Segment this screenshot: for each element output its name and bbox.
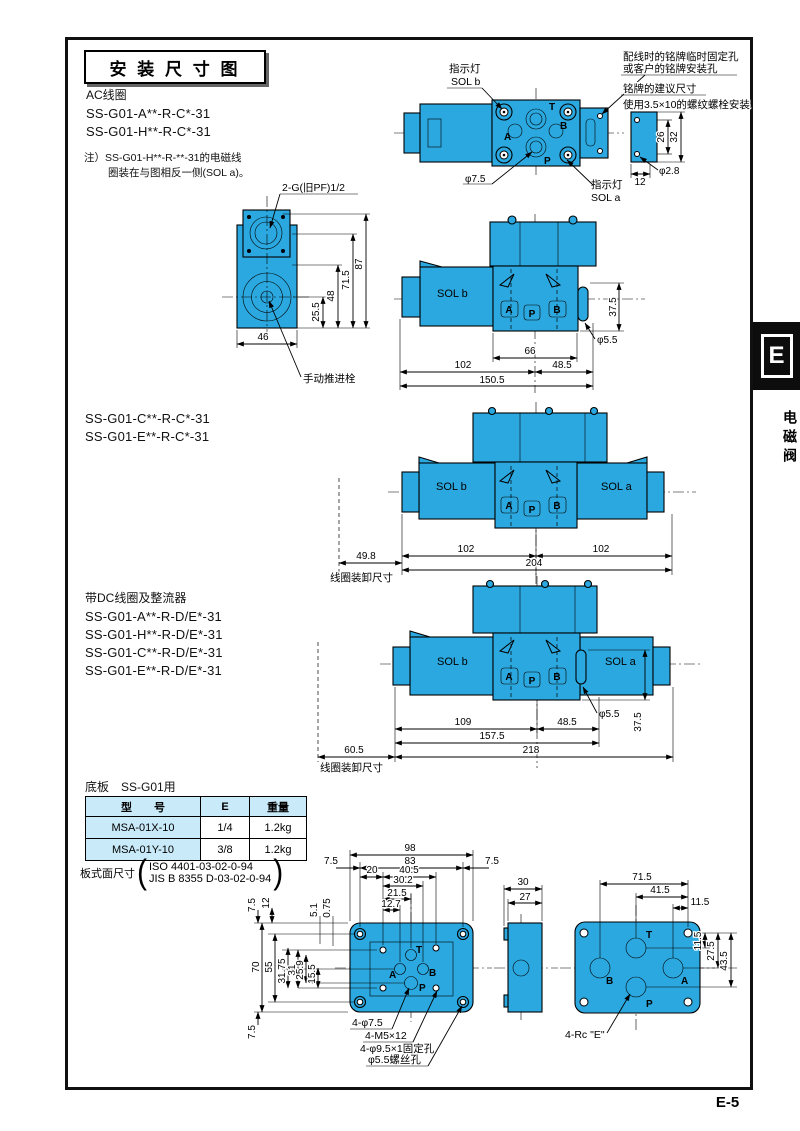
dim-157-5: 157.5 xyxy=(479,731,504,742)
dim-71-5: 71.5 xyxy=(341,270,352,290)
dim-60-5: 60.5 xyxy=(344,745,364,756)
tab-side-label: 电磁阀 xyxy=(753,398,800,478)
sym-b: B xyxy=(553,305,560,316)
dim-25-9: 25.9 xyxy=(295,960,306,980)
dim-102: 102 xyxy=(455,360,472,371)
sol-b-label: SOL b xyxy=(436,481,467,493)
ac-heading: AC线圈 xyxy=(86,86,211,103)
dim-7-5-right: 7.5 xyxy=(485,856,499,867)
dia-5-5: φ5.5 xyxy=(599,709,620,720)
c-model-2: SS-G01-E**-R-C*-31 xyxy=(85,429,210,444)
sol-b-label: SOL b xyxy=(437,288,468,300)
fix-note-1: 配线时的铭牌临时固定孔 xyxy=(623,50,739,63)
dim-15-5: 15.5 xyxy=(307,964,318,984)
dia-5-5: φ5.5 xyxy=(597,335,618,346)
sym-p: P xyxy=(529,309,536,320)
dim-32: 32 xyxy=(669,131,680,143)
subplate-table: 型 号 E 重量 MSA-01X-10 1/4 1.2kg MSA-01Y-10… xyxy=(85,796,307,861)
c-series-section: SS-G01-C**-R-C*-31 SS-G01-E**-R-C*-31 xyxy=(85,411,210,444)
port-b-label: B xyxy=(560,121,567,132)
valve2-drawing: A P B SOL b SOL a 102 102 204 49.8 线圈装卸尺… xyxy=(330,402,696,584)
leftview-drawing: 25.5 48 71.5 87 46 2-G(旧PF)1/2 手动推进栓 xyxy=(222,182,370,385)
port-t-label: T xyxy=(549,102,555,113)
port-a-label: A xyxy=(389,970,396,981)
dim-11-5-h: 11.5 xyxy=(691,897,710,908)
plate-size-note: 铭牌的建议尺寸 xyxy=(623,82,697,95)
sol-a-label: SOL a xyxy=(601,481,633,493)
dim-204: 204 xyxy=(526,558,543,569)
dim-37-5: 37.5 xyxy=(608,297,619,317)
sym-a: A xyxy=(505,501,512,512)
sym-p: P xyxy=(529,505,536,516)
dim-66: 66 xyxy=(524,346,536,357)
ac-section: AC线圈 SS-G01-A**-R-C*-31 SS-G01-H**-R-C*-… xyxy=(86,86,211,139)
dim-70: 70 xyxy=(251,961,262,973)
dim-55: 55 xyxy=(264,961,275,973)
valve3-drawing: A P B SOL b SOL a φ5.5 37.5 109 48.5 157… xyxy=(318,576,700,774)
port-p-label: P xyxy=(646,999,653,1010)
ac-note-line2: 圈装在与图相反一侧(SOL a)。 xyxy=(108,165,249,180)
valve1-drawing: A P B SOL b 37.5 φ5.5 66 102 48.5 150.5 xyxy=(394,214,645,393)
sym-b: B xyxy=(553,501,560,512)
dc-model-1: SS-G01-A**-R-D/E*-31 xyxy=(85,609,223,624)
cell-weight: 1.2kg xyxy=(250,817,307,839)
sol-a-label: SOL a xyxy=(605,656,637,668)
dc-heading: 带DC线圈及整流器 xyxy=(85,589,223,606)
ac-model-2: SS-G01-H**-R-C*-31 xyxy=(86,124,211,139)
subplate-heading-text: 底板 SS-G01用 xyxy=(85,778,176,795)
iso-standard: ISO 4401-03-02-0-94 xyxy=(149,861,271,873)
dim-7-5-bottom: 7.5 xyxy=(247,1025,258,1039)
port-t-label: T xyxy=(416,945,422,956)
sym-b: B xyxy=(553,672,560,683)
sym-a: A xyxy=(505,672,512,683)
dim-21-5: 21.5 xyxy=(387,888,407,899)
dim-26: 26 xyxy=(656,131,667,143)
paren-close: ) xyxy=(273,853,283,892)
coil-removal-label: 线圈装卸尺寸 xyxy=(320,761,383,774)
dim-87: 87 xyxy=(354,258,365,270)
jis-standard: JIS B 8355 D-03-02-0-94 xyxy=(149,873,271,885)
dia75-label: φ7.5 xyxy=(465,174,486,185)
tab-letter: E xyxy=(761,334,793,378)
holes-4-m5: 4-M5×12 xyxy=(365,1030,407,1042)
dim-48-5: 48.5 xyxy=(557,717,577,728)
subplate-heading: 底板 SS-G01用 xyxy=(85,778,176,795)
dim-49-8: 49.8 xyxy=(356,551,376,562)
fix-note-2: 或客户的铭牌安装孔 xyxy=(623,62,718,75)
dim-27-5: 27.5 xyxy=(706,941,717,961)
dim-27: 27 xyxy=(519,892,531,903)
surface-label: 板式面尺寸 xyxy=(80,865,135,881)
dc-model-4: SS-G01-E**-R-D/E*-31 xyxy=(85,663,223,678)
paren-open: ( xyxy=(137,853,147,892)
dim-71-5: 71.5 xyxy=(632,872,652,883)
dim-46: 46 xyxy=(257,332,269,343)
surface-size-note: 板式面尺寸 ( ISO 4401-03-02-0-94 JIS B 8355 D… xyxy=(80,856,285,890)
dim-0-75: 0.75 xyxy=(322,898,333,918)
table-header-row: 型 号 E 重量 xyxy=(86,797,307,817)
lamp-b-callout: 指示灯 xyxy=(449,62,481,75)
page-title: 安 装 尺 寸 图 xyxy=(84,50,266,84)
dim-150-5: 150.5 xyxy=(479,375,504,386)
subplate-right-drawing: T B A P 71.5 41.5 11.5 11.5 27.5 43.5 4-… xyxy=(560,872,737,1041)
dim-30: 30 xyxy=(517,877,529,888)
cell-model: MSA-01X-10 xyxy=(86,817,201,839)
ac-model-1: SS-G01-A**-R-C*-31 xyxy=(86,106,211,121)
coil-removal-label: 线圈装卸尺寸 xyxy=(330,571,393,584)
port-p-label: P xyxy=(544,156,551,167)
topview-drawing: T B A P 指示灯 SOL b 指示灯 SOL a φ7.5 配线时的铭牌临… xyxy=(394,50,750,204)
manual-pin-label: 手动推进栓 xyxy=(303,372,356,385)
dim-37-5: 37.5 xyxy=(633,712,644,732)
dia28-label: φ2.8 xyxy=(659,166,680,177)
dim-48: 48 xyxy=(326,290,337,302)
holes-5-5: φ5.5螺丝孔 xyxy=(368,1053,421,1066)
ac-note: 注）SS-G01-H**-R-**-31的电磁线 圈装在与图相反一侧(SOL a… xyxy=(84,150,249,180)
c-model-1: SS-G01-C**-R-C*-31 xyxy=(85,411,210,426)
dim-102-right: 102 xyxy=(593,544,610,555)
dim-30-2: 30.2 xyxy=(393,875,413,886)
port-b-label: B xyxy=(606,976,613,987)
ac-note-line1: 注）SS-G01-H**-R-**-31的电磁线 xyxy=(84,150,249,165)
dc-section: 带DC线圈及整流器 SS-G01-A**-R-D/E*-31 SS-G01-H*… xyxy=(85,589,223,678)
sym-p: P xyxy=(529,676,536,687)
dim-41-5: 41.5 xyxy=(650,885,670,896)
dim-109: 109 xyxy=(455,717,472,728)
dim-12-7: 12.7 xyxy=(381,899,401,910)
section-tab: E xyxy=(753,322,800,390)
dc-model-2: SS-G01-H**-R-D/E*-31 xyxy=(85,627,223,642)
col-e: E xyxy=(201,797,250,817)
cell-e: 1/4 xyxy=(201,817,250,839)
port-a-label: A xyxy=(504,132,511,143)
dim-102-left: 102 xyxy=(458,544,475,555)
catalog-page: T B A P 指示灯 SOL b 指示灯 SOL a φ7.5 配线时的铭牌临… xyxy=(0,0,800,1131)
bolt-note: 使用3.5×10的螺纹螺栓安装 xyxy=(623,98,750,111)
table-row: MSA-01X-10 1/4 1.2kg xyxy=(86,817,307,839)
dim-48-5: 48.5 xyxy=(552,360,572,371)
port-p-label: P xyxy=(419,983,426,994)
thread-label: 2-G(旧PF)1/2 xyxy=(282,182,345,194)
dim-98: 98 xyxy=(404,843,416,854)
lamp-a-sol: SOL a xyxy=(591,192,621,204)
dim-11-5-v: 11.5 xyxy=(693,931,704,950)
sol-b-label: SOL b xyxy=(437,656,468,668)
dim-5-1: 5.1 xyxy=(309,903,320,917)
dc-model-3: SS-G01-C**-R-D/E*-31 xyxy=(85,645,223,660)
lamp-b-sol: SOL b xyxy=(451,76,481,88)
dim-20: 20 xyxy=(366,865,378,876)
lamp-a-callout: 指示灯 xyxy=(591,178,623,191)
dim-7-5-left: 7.5 xyxy=(324,856,338,867)
port-a-label: A xyxy=(681,976,688,987)
port-b-label: B xyxy=(429,968,436,979)
holes-4-7-5: 4-φ7.5 xyxy=(352,1017,383,1029)
sym-a: A xyxy=(505,305,512,316)
col-model: 型 号 xyxy=(86,797,201,817)
col-weight: 重量 xyxy=(250,797,307,817)
dim-7-5-top: 7.5 xyxy=(247,898,258,912)
dim-12: 12 xyxy=(634,177,646,188)
subplate-side-drawing: 30 27 xyxy=(494,877,558,1022)
rc-e-label: 4-Rc "E" xyxy=(565,1029,605,1041)
dim-43-5: 43.5 xyxy=(719,951,730,971)
page-number: E-5 xyxy=(700,1094,755,1111)
dim-218: 218 xyxy=(523,745,540,756)
dim-12-v: 12 xyxy=(261,897,272,909)
dim-25-5: 25.5 xyxy=(311,302,322,322)
port-t-label: T xyxy=(646,930,652,941)
